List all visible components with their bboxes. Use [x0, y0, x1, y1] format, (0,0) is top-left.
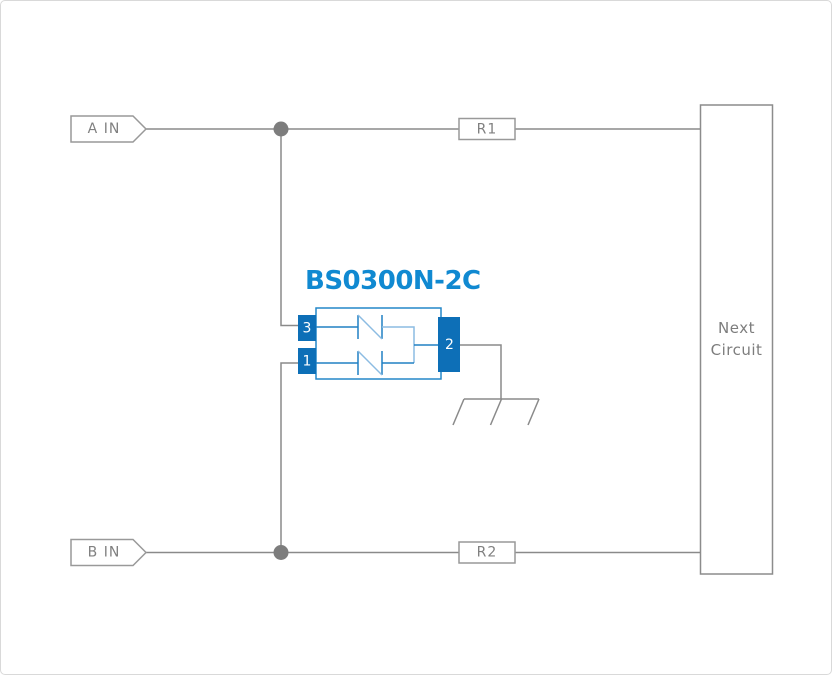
next-circuit-block: Next Circuit	[701, 105, 773, 574]
pin-2-number: 2	[445, 337, 454, 353]
tvs-component: BS0300N-2C	[298, 266, 481, 379]
port-b-in-label: B IN	[88, 545, 121, 561]
diode-bottom-diagonal	[358, 351, 382, 375]
wire-b-to-pin1	[281, 363, 298, 553]
resistor-r1: R1	[459, 119, 515, 140]
ground-symbol	[453, 399, 539, 425]
diode-top-lead-right	[382, 327, 414, 345]
wire-a-to-pin3	[281, 129, 298, 326]
port-a-in-label: A IN	[88, 121, 121, 137]
component-part-number: BS0300N-2C	[305, 266, 481, 296]
pin-1: 1	[298, 348, 316, 374]
next-circuit-label-line2: Circuit	[711, 341, 763, 359]
pin-3: 3	[298, 315, 316, 341]
port-a-in: A IN	[71, 116, 146, 142]
tvs-diode-bottom	[316, 345, 414, 375]
junction-dot-a	[274, 122, 289, 137]
tvs-diode-top	[316, 315, 414, 345]
common-lead-to-pin2	[406, 345, 438, 363]
junction-dot-b	[274, 545, 289, 560]
pin-1-number: 1	[303, 354, 312, 370]
circuit-diagram: A IN B IN R1 R2 Next Circuit BS0300N-2C	[0, 0, 832, 675]
pin-3-number: 3	[303, 321, 312, 337]
ground-hatch-3	[528, 399, 539, 425]
component-body	[316, 308, 441, 379]
diode-top-diagonal	[358, 315, 382, 339]
resistor-r1-label: R1	[477, 122, 498, 138]
pin-2: 2	[438, 317, 460, 372]
next-circuit-body	[701, 105, 773, 574]
ground-hatch-2	[491, 399, 502, 425]
resistor-r2-label: R2	[477, 545, 498, 561]
resistor-r2: R2	[459, 542, 515, 563]
wires	[146, 129, 701, 553]
next-circuit-label-line1: Next	[718, 319, 755, 337]
wire-pin2-to-ground	[460, 345, 501, 399]
ground-hatch-1	[453, 399, 464, 425]
port-b-in: B IN	[71, 540, 146, 566]
